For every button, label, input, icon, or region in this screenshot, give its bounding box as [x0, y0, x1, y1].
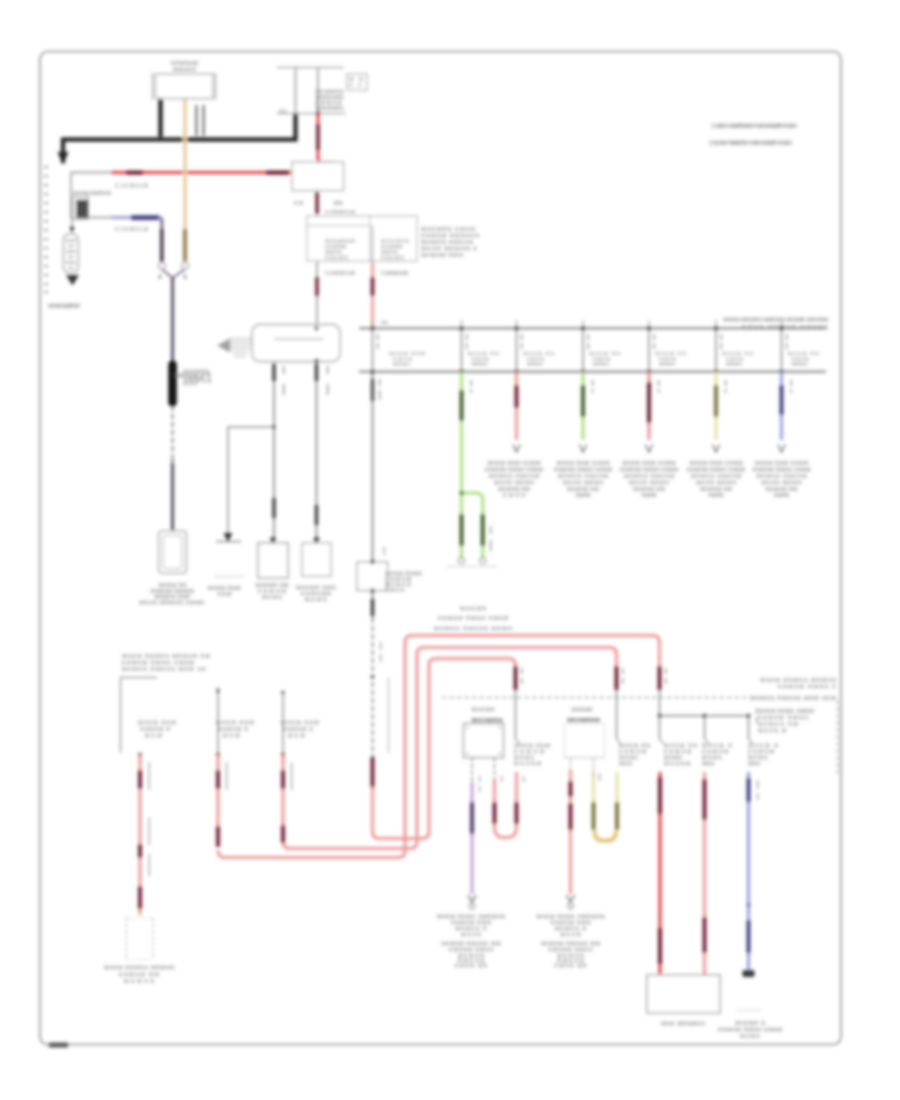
svg-text:MHWK: MHWK [305, 598, 328, 604]
svg-text:MRWH: MRWH [726, 362, 743, 368]
svg-text:KNWHM RWNH KWAM: KNWHM RWNH KWAM [554, 468, 612, 474]
svg-text:MHWK: MHWK [262, 595, 283, 601]
svg-text:WKHNM: WKHNM [664, 762, 690, 768]
svg-text:WKHN MRWH: WKHN MRWH [629, 481, 669, 487]
svg-text:KNWHM RWNH KWAM: KNWHM RWNH KWAM [122, 661, 194, 667]
svg-text:KWHN: KWHN [576, 493, 591, 499]
svg-text:WHKMR: WHKMR [472, 708, 495, 714]
svg-text:WHKN MKWRH NMKWA HKNMR WKHNM: WHKN MKWRH NMKWA HKNMR WKHNM [723, 318, 828, 324]
svg-text:MHWKN RWKHM: MHWKN RWKHM [489, 474, 539, 480]
svg-text:MRWH: MRWH [593, 362, 610, 368]
svg-text:KNWHM R: KNWHM R [218, 727, 248, 733]
svg-text:WHKMR N: WHKMR N [735, 1021, 765, 1027]
svg-text:KNWHM RWNH KWAM: KNWHM RWNH KWAM [687, 468, 745, 474]
svg-text:WHKM RNWKH MRWHN: WHKM RNWKH MRWHN [104, 966, 174, 972]
svg-text:WHKM RNW: WHKM RNW [138, 721, 176, 727]
svg-text:C4WM04B: C4WM04B [381, 271, 409, 277]
svg-text:NHKWMRL: NHKWMRL [316, 106, 345, 112]
svg-text:MRWH: MRWH [393, 362, 411, 368]
svg-text:KNW: KNW [218, 592, 232, 598]
svg-text:WKHN MRWHN KWMR: WKHN MRWHN KWMR [139, 601, 204, 607]
svg-text:WN: WN [334, 201, 343, 207]
svg-text:MHWKN RWKHM: MHWKN RWKHM [691, 474, 741, 480]
svg-text:KWHN: KWHN [774, 493, 789, 499]
svg-text:WHKMR: WHKMR [572, 708, 593, 714]
svg-text:2 KHW NMKRH WKANMR KWH: 2 KHW NMKRH WKANMR KWH [709, 140, 792, 147]
svg-text:MWHKR: MWHKR [173, 68, 196, 74]
svg-text:KWHN MR: KWHN MR [455, 964, 487, 970]
svg-text:WKHN MRWH: WKHN MRWH [563, 481, 603, 487]
svg-text:KM: KM [294, 201, 303, 207]
svg-text:WHKM RNW: WHKM RNW [389, 351, 425, 357]
svg-text:MHWK: MHWK [740, 1034, 761, 1040]
svg-text:WHKM RNW: WHKM RNW [216, 721, 254, 727]
svg-text:KNWHM RWNH: KNWHM RWNH [758, 716, 808, 722]
svg-text:HNKWR: HNKWR [381, 256, 404, 262]
svg-text:MRWH: MRWH [792, 362, 809, 368]
svg-text:KNWHM R: KNWHM R [283, 727, 313, 733]
svg-text:WHKM RNWKH MRWHN KW: WHKM RNWKH MRWHN KW [122, 654, 210, 660]
svg-text:WHKM RNWK HMRW: WHKM RNWK HMRW [758, 709, 814, 715]
svg-text:WKH: WKH [619, 762, 632, 768]
svg-text:WKHNM: WKHNM [514, 762, 541, 768]
svg-text:MHWKN RWKHM: MHWKN RWKHM [757, 474, 807, 480]
svg-text:MHW: MHW [145, 734, 162, 740]
svg-text:WKHN MRWHN K: WKHN MRWHN K [421, 247, 477, 253]
svg-text:WHKMRN KWHN: WHKMRN KWHN [421, 227, 475, 233]
svg-text:KWHN: KWHN [642, 493, 657, 499]
svg-text:KNWHM RWNH KWAM: KNWHM RWNH KWAM [753, 468, 811, 474]
svg-text:KW: KW [381, 320, 389, 325]
svg-text:WKHN MRWH: WKHN MRWH [494, 481, 534, 487]
svg-text:KNWHM RWNH KWAM: KNWHM RWNH KWAM [438, 616, 508, 622]
svg-text:C4WM03B: C4WM03B [325, 271, 356, 277]
svg-text:WKHN MRWH: WKHN MRWH [762, 481, 802, 487]
svg-text:KRWNHM: KRWNHM [171, 61, 199, 67]
svg-text:MRWH: MRWH [659, 362, 676, 368]
svg-text:MHWKN RWKHM: MHWKN RWKHM [558, 474, 608, 480]
svg-text:WHKM RNW KHWM: WHKM RNW KHWM [488, 461, 541, 467]
svg-text:1 WKH NMRWKH WHANMR KWH: 1 WKH NMRWKH WHANMR KWH [711, 123, 797, 130]
svg-text:MHW: MHW [223, 734, 240, 740]
svg-text:WKH: WKH [748, 762, 760, 768]
svg-text:KNWHM RWNH KWAM: KNWHM RWNH KWAM [620, 468, 678, 474]
svg-text:KNWHM R: KNWHM R [140, 727, 170, 733]
svg-text:WHKM RNW KHWM: WHKM RNW KHWM [690, 461, 743, 467]
svg-text:KNWHM RWNH KWAM: KNWHM RWNH KWAM [485, 468, 543, 474]
svg-text:MRWH: MRWH [527, 362, 544, 368]
svg-text:WHKM RNW KHWM: WHKM RNW KHWM [755, 461, 808, 467]
svg-text:KWHN: KWHN [709, 493, 724, 499]
svg-text:KNWHM RWNHKA: KNWHM RWNHKA [421, 234, 479, 240]
svg-text:MHWKN RWKHN: MHWKN RWKHN [421, 240, 473, 246]
svg-text:MRWH: MRWH [472, 362, 489, 368]
svg-text:WHKNMRW: WHKNMRW [48, 304, 80, 310]
svg-text:MHW: MHW [288, 734, 305, 740]
svg-text:WKH: WKH [702, 762, 714, 768]
svg-text:C4WM03A: C4WM03A [325, 210, 356, 216]
svg-text:KWHN MR: KWHN MR [555, 964, 587, 970]
svg-text:MHWKN RWKHM: MHWKN RWKHM [624, 474, 674, 480]
svg-text:WKHN M: WKHN M [758, 729, 786, 735]
svg-text:WKHN MRWH: WKHN MRWH [696, 481, 736, 487]
svg-text:NKWHM RWH: NKWHM RWH [421, 253, 463, 259]
svg-text:WHKM RNW KHWM: WHKM RNW KHWM [623, 461, 676, 467]
svg-text:WHKM RNW: WHKM RNW [281, 721, 319, 727]
svg-text:KNWHM RWNH KWAM: KNWHM RWNH KWAM [718, 1028, 782, 1034]
svg-text:MHWKN RWKHN MRW HKW: MHWKN RWKHN MRW HKW [750, 696, 837, 702]
svg-text:WHKM RNW KHWM: WHKM RNW KHWM [557, 461, 610, 467]
svg-text:WHKMR: WHKMR [460, 607, 486, 613]
svg-text:HNKWR: HNKWR [325, 256, 348, 262]
svg-text:WHK MRNWKH: WHK MRNWKH [661, 1022, 705, 1028]
